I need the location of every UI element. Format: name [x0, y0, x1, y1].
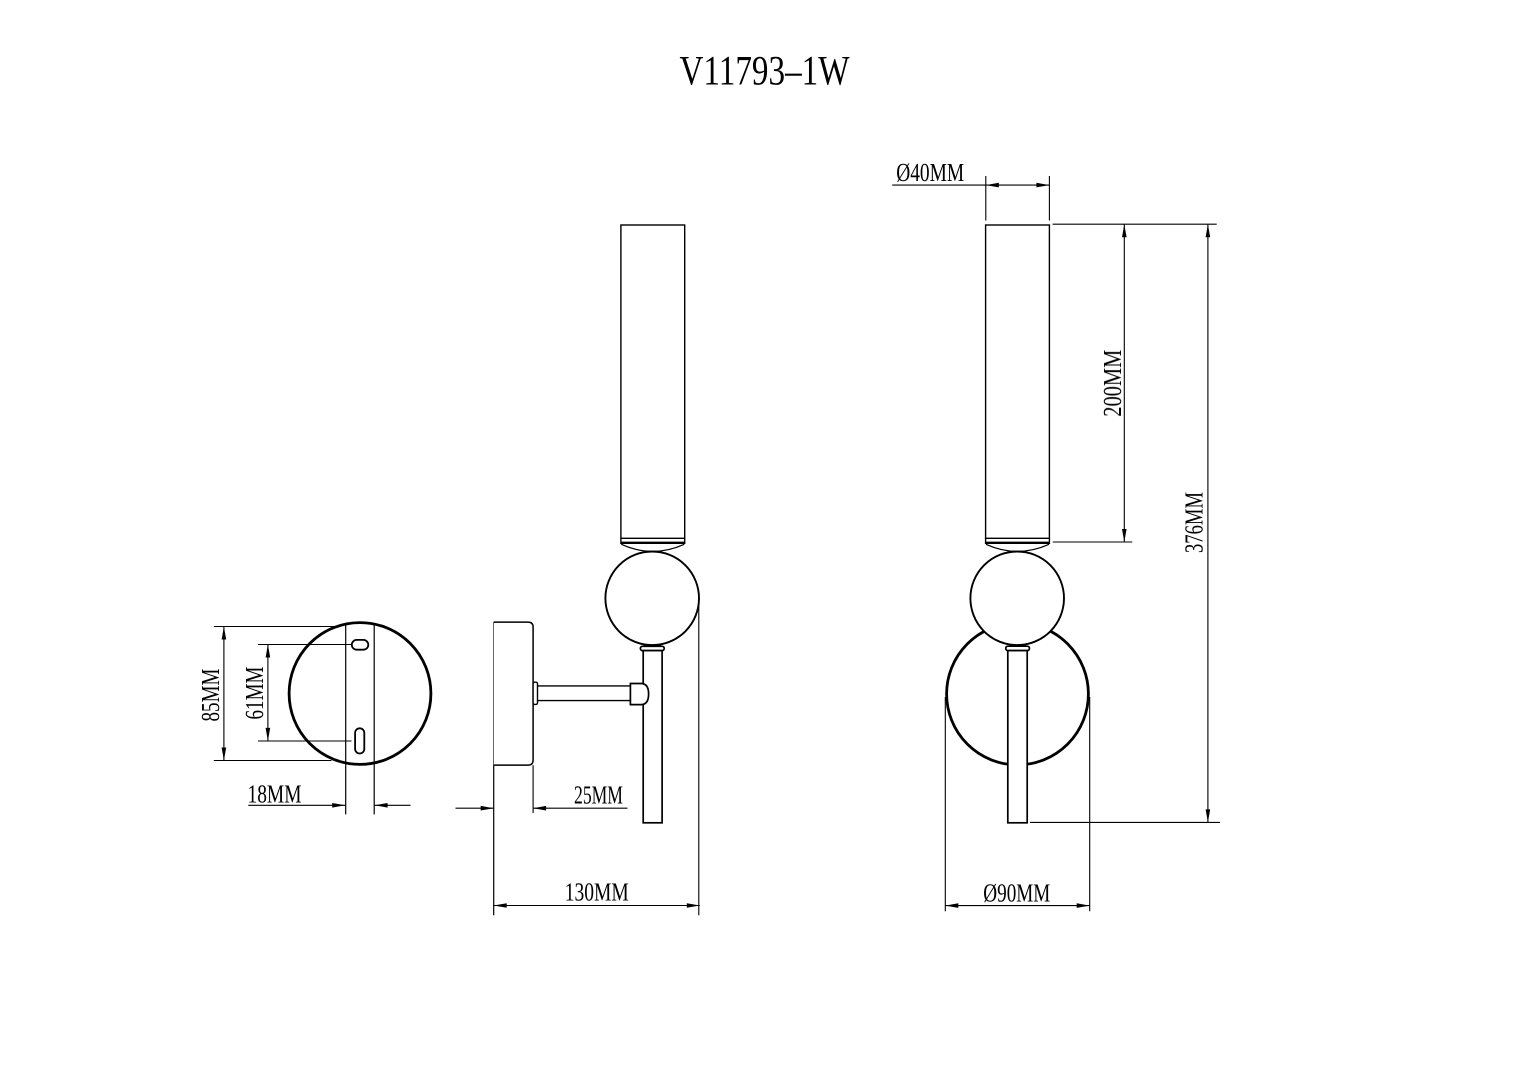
svg-text:25MM: 25MM	[574, 781, 623, 810]
svg-text:200MM: 200MM	[1098, 350, 1127, 417]
svg-text:130MM: 130MM	[565, 878, 629, 907]
svg-text:61MM: 61MM	[240, 667, 269, 720]
svg-text:Ø90MM: Ø90MM	[983, 878, 1050, 907]
svg-text:Ø40MM: Ø40MM	[896, 158, 964, 187]
svg-text:376MM: 376MM	[1180, 492, 1209, 553]
svg-text:V11793–1W: V11793–1W	[680, 49, 850, 95]
svg-text:18MM: 18MM	[248, 780, 302, 809]
svg-text:85MM: 85MM	[196, 669, 225, 722]
